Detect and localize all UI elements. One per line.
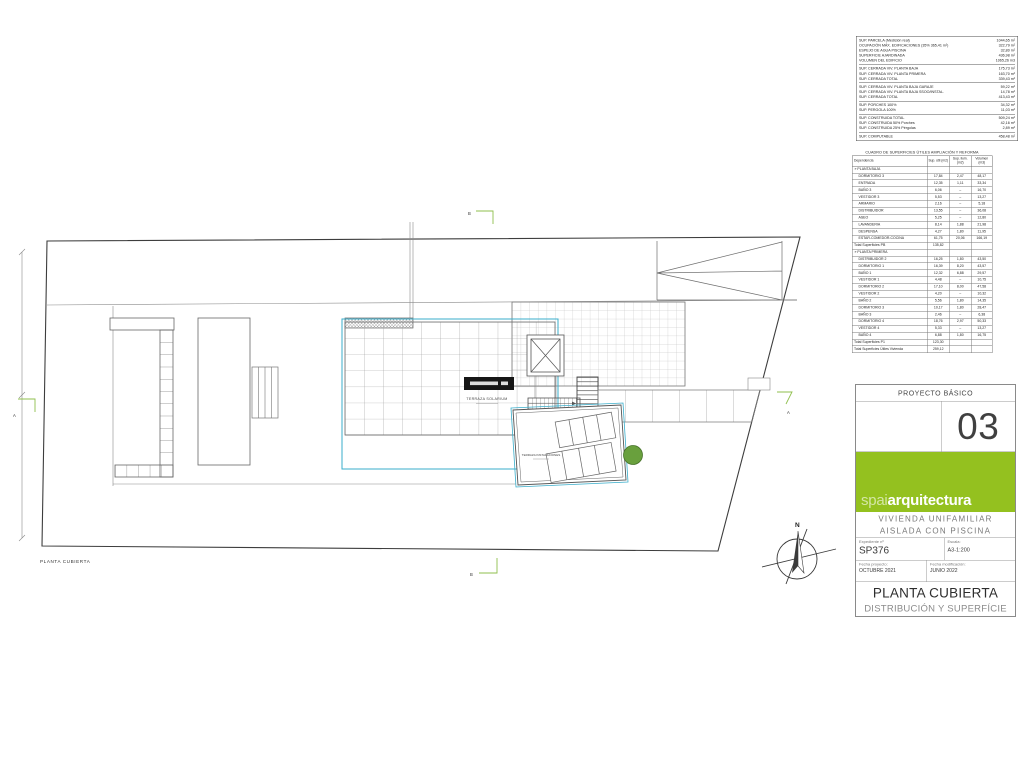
paver-walkway	[598, 390, 760, 422]
room-row: LAVANDERIA8,141,8821,98	[852, 221, 992, 228]
north-label: N	[795, 522, 800, 529]
brand-panel: spaiarquitectura	[856, 452, 1015, 512]
useful-areas-table: CUADRO DE SUPERFICIES ÚTILES AMPLIACIÓN …	[852, 150, 992, 353]
skylight	[527, 335, 564, 376]
room-row: BAÑO 25,561,8014,35	[852, 298, 992, 305]
drawing-sheet: TERRAZA SOLARIUM	[0, 0, 1020, 765]
garage-roof	[198, 318, 278, 465]
ramp-arrows	[657, 241, 797, 300]
group-separator	[859, 114, 1015, 115]
project-type-label: PROYECTO BÁSICO	[856, 385, 1015, 402]
project-title-line2: AISLADA CON PISCINA	[856, 526, 1015, 538]
svg-text:A: A	[787, 410, 790, 415]
room-row: VESTIDOR 45,33–13,27	[852, 325, 992, 332]
section-marker-b-top: B	[468, 211, 493, 224]
expediente-value: SP376	[859, 545, 944, 557]
total-row: Total Superficies PB135,82	[852, 242, 992, 249]
total-row: Total Superficies Útiles Vivienda259,12	[852, 346, 992, 353]
project-title: VIVIENDA UNIFAMILIAR AISLADA CON PISCINA	[856, 512, 1015, 538]
room-row: BAÑO 36,06–16,70	[852, 187, 992, 194]
section-row: » PLANTA PRIMERA	[852, 249, 992, 256]
tree	[624, 446, 643, 465]
brand-bold: arquitectura	[888, 492, 972, 509]
room-row: BAÑO 46,881,8016,75	[852, 332, 992, 339]
surface-summary-table: SUP. PARCELA (Medición real)1044,65 m²OC…	[856, 36, 1018, 141]
room-row: VESTIDOR 14,48–10,75	[852, 277, 992, 284]
escala-field: Escala: A3-1:200	[945, 538, 1016, 560]
col-dependencia: Dependencia	[852, 156, 927, 166]
fecha-proyecto-field: Fecha proyecto: OCTUBRE 2021	[856, 561, 927, 582]
svg-text:B: B	[468, 211, 471, 216]
expediente-field: Expediente nº SP376	[856, 538, 945, 560]
surface-row: SUP. CERRADA TOTAL339,43 m²	[859, 76, 1015, 81]
col-volumen: Volumen (m3)	[971, 156, 992, 166]
room-row: ENTRADA12,351,1133,34	[852, 180, 992, 187]
project-title-line1: VIVIENDA UNIFAMILIAR	[856, 514, 1015, 526]
expediente-escala-row: Expediente nº SP376 Escala: A3-1:200	[856, 538, 1015, 561]
compass: N	[762, 522, 836, 584]
dates-row: Fecha proyecto: OCTUBRE 2021 Fecha modif…	[856, 561, 1015, 583]
room-row: DORMITORIO 310,171,8028,47	[852, 304, 992, 311]
fecha-modificacion-value: JUNIO 2022	[930, 567, 1015, 575]
escala-value: A3-1:200	[948, 545, 1016, 556]
surface-row: VOLUMEN DEL EDIFICIO1065,26 m3	[859, 58, 1015, 63]
surface-row: SUP. CERRADA TOTAL413,43 m²	[859, 94, 1015, 99]
svg-text:A: A	[13, 413, 16, 418]
room-row: DORMITORIO 418,762,9750,33	[852, 318, 992, 325]
section-row: » PLANTA BAJA	[852, 166, 992, 173]
group-separator	[859, 101, 1015, 102]
room-row: DISTRIBUIDOR13,55–36,08	[852, 208, 992, 215]
brand-light: spai	[861, 492, 888, 509]
fecha-modificacion-field: Fecha modificación: JUNIO 2022	[927, 561, 1015, 582]
col-sup-util: Sup. útil (m2)	[927, 156, 949, 166]
installations-label: TERRAZA INSTALACIONES	[522, 453, 560, 457]
room-row: DORMITORIO 116,398,2043,57	[852, 263, 992, 270]
room-row: DISTRIBUIDOR 216,251,8043,50	[852, 256, 992, 263]
room-row: DORMITORIO 317,842,4748,17	[852, 173, 992, 180]
title-block: PROYECTO BÁSICO 03 spaiarquitectura VIVI…	[855, 384, 1016, 617]
plan-caption: PLANTA CUBIERTA	[40, 559, 91, 564]
room-row: VESTIDOR 24,20–10,32	[852, 291, 992, 298]
room-row: ASEO5,25–12,80	[852, 215, 992, 222]
col-sup-ilum: Sup. ilum. (m2)	[949, 156, 971, 166]
fecha-proyecto-value: OCTUBRE 2021	[859, 567, 927, 575]
sheet-number: 03	[942, 402, 1016, 452]
surface-row: SUP. CONSTRUIDA 25% Pérgolas2,89 m²	[859, 126, 1015, 131]
areas-table-title: CUADRO DE SUPERFICIES ÚTILES AMPLIACIÓN …	[852, 150, 992, 155]
sheet-subtitle: DISTRIBUCIÓN Y SUPERFÍCIE	[856, 604, 1015, 616]
room-row: BAÑO 32,46–6,38	[852, 311, 992, 318]
section-marker-a-left: A	[13, 399, 35, 418]
room-row: DESPENSA4,271,8011,95	[852, 228, 992, 235]
room-row: ESTAR-COMEDOR-COCINA61,7520,06166,19	[852, 235, 992, 242]
room-row: BAÑO 112,326,8829,57	[852, 270, 992, 277]
group-separator	[859, 83, 1015, 84]
sheet-number-row: 03	[856, 402, 1015, 453]
section-marker-a-right: A	[777, 392, 792, 415]
empty-cell	[856, 402, 942, 452]
areas-table-header: Dependencia Sup. útil (m2) Sup. ilum. (m…	[852, 156, 992, 166]
sheet-title: PLANTA CUBIERTA	[856, 582, 1015, 604]
group-separator	[859, 132, 1015, 133]
north-needle	[792, 531, 798, 573]
left-pergola	[110, 318, 174, 477]
surface-row: SUP. COMPUTABLE458,48 m²	[859, 134, 1015, 139]
room-row: VESTIDOR 35,53–13,27	[852, 194, 992, 201]
solarium-label: TERRAZA SOLARIUM	[466, 397, 507, 401]
svg-text:B: B	[470, 572, 473, 577]
keynote-box	[464, 377, 514, 390]
total-row: Total Superficies P1123,30	[852, 339, 992, 346]
room-row: DORMITORIO 217,108,0047,58	[852, 284, 992, 291]
vent-grate	[577, 377, 598, 408]
surface-row: SUP. PERGOLA 100%11,03 m²	[859, 108, 1015, 113]
room-row: ARMARIO2,16–5,18	[852, 201, 992, 208]
brand-logo: spaiarquitectura	[861, 493, 971, 508]
section-marker-b-bottom: B	[470, 558, 497, 577]
group-separator	[859, 64, 1015, 65]
